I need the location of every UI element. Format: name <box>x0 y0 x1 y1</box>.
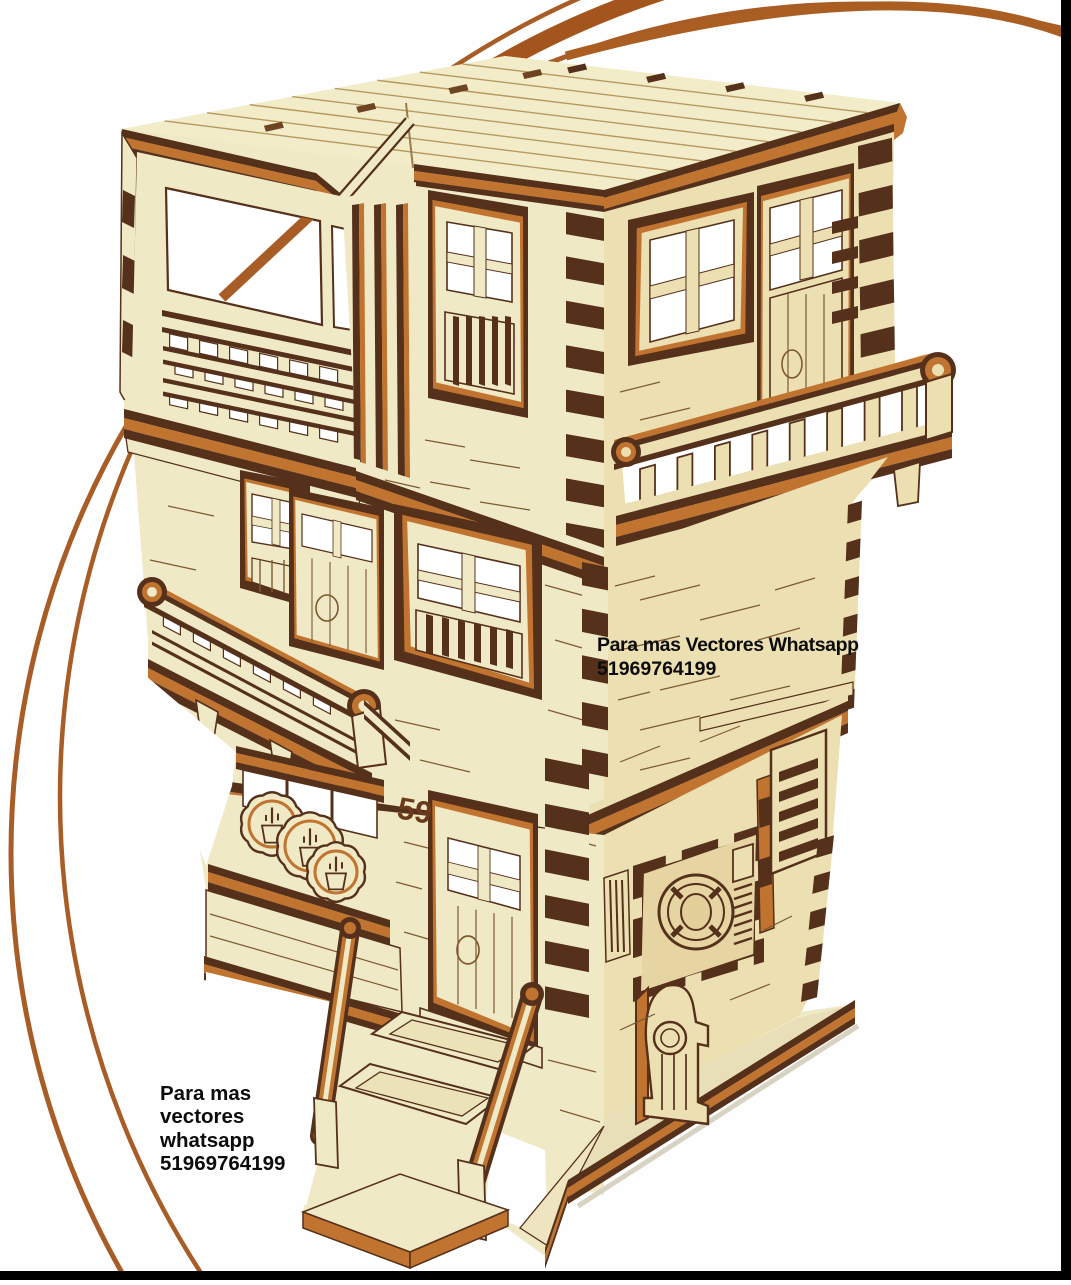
svg-text:Para mas Vectores Whatsapp: Para mas Vectores Whatsapp <box>597 634 859 656</box>
svg-text:Para mas: Para mas <box>160 1082 251 1105</box>
svg-text:whatsapp: whatsapp <box>159 1129 255 1152</box>
svg-text:59: 59 <box>395 790 435 830</box>
svg-text:vectores: vectores <box>160 1105 244 1128</box>
svg-text:51969764199: 51969764199 <box>160 1152 285 1175</box>
svg-text:51969764199: 51969764199 <box>597 658 716 680</box>
